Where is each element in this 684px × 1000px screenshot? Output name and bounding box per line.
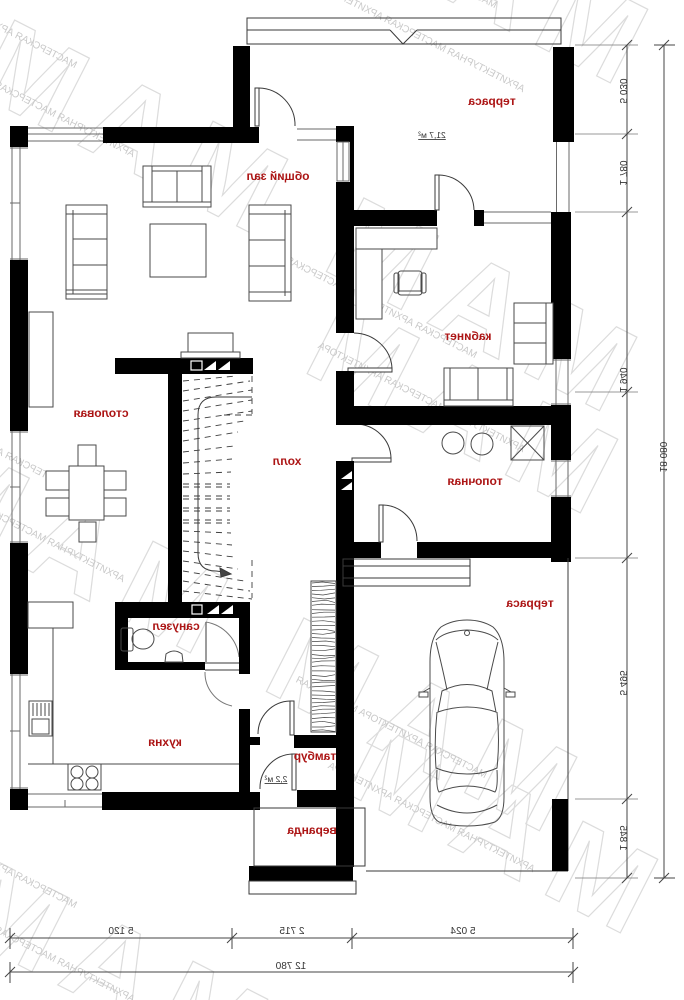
- svg-text:1 845: 1 845: [617, 825, 628, 850]
- svg-text:5 120: 5 120: [108, 926, 133, 937]
- svg-text:холл: холл: [273, 454, 302, 468]
- svg-text:2,2 м²: 2,2 м²: [264, 774, 287, 784]
- svg-text:21,7 м²: 21,7 м²: [418, 130, 446, 140]
- svg-text:2 715: 2 715: [279, 926, 304, 937]
- svg-text:5 024: 5 024: [450, 926, 475, 937]
- svg-text:санузел: санузел: [152, 619, 199, 633]
- svg-text:1 940: 1 940: [617, 367, 628, 392]
- svg-text:5 030: 5 030: [617, 78, 628, 103]
- svg-text:тамбур: тамбур: [294, 749, 336, 763]
- svg-text:терраса: терраса: [506, 596, 554, 610]
- svg-text:топочная: топочная: [447, 474, 502, 488]
- svg-text:18 080: 18 080: [657, 441, 668, 472]
- svg-text:терраса: терраса: [468, 94, 516, 108]
- svg-text:кухня: кухня: [148, 735, 182, 749]
- svg-text:общий зал: общий зал: [246, 169, 309, 183]
- svg-text:12 780: 12 780: [275, 961, 306, 972]
- svg-text:1 780: 1 780: [617, 160, 628, 185]
- svg-text:кабинет: кабинет: [444, 329, 491, 343]
- svg-text:веранда: веранда: [287, 823, 337, 837]
- svg-text:столовая: столовая: [73, 406, 128, 420]
- svg-text:5 495: 5 495: [617, 670, 628, 695]
